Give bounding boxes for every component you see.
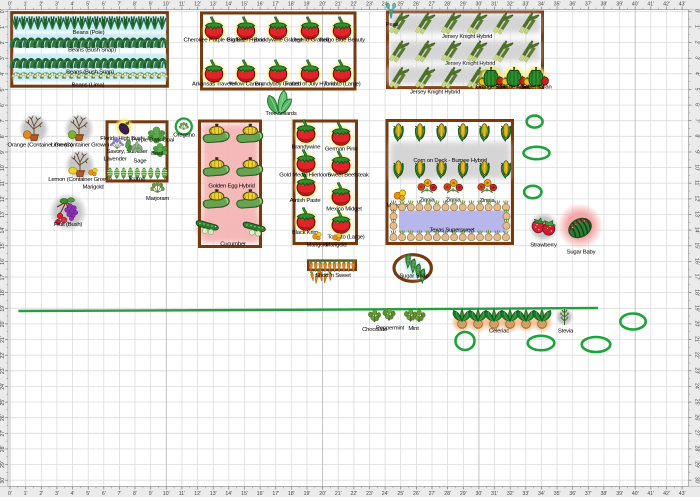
svg-text:2': 2' bbox=[0, 41, 6, 45]
svg-text:Beans (Lima): Beans (Lima) bbox=[72, 82, 105, 88]
svg-text:13': 13' bbox=[210, 2, 217, 8]
svg-text:42': 42' bbox=[663, 2, 670, 8]
svg-text:Lime (Container Grown): Lime (Container Grown) bbox=[51, 143, 110, 149]
svg-text:9': 9' bbox=[149, 2, 153, 8]
svg-text:38': 38' bbox=[601, 2, 608, 8]
svg-text:7': 7' bbox=[0, 119, 6, 123]
svg-text:Stevia: Stevia bbox=[558, 329, 574, 335]
svg-text:17': 17' bbox=[0, 274, 6, 281]
svg-text:25': 25' bbox=[0, 399, 6, 406]
svg-text:10': 10' bbox=[694, 164, 700, 171]
svg-text:22': 22' bbox=[694, 352, 700, 359]
svg-text:28': 28' bbox=[444, 2, 451, 8]
svg-text:10': 10' bbox=[163, 491, 170, 497]
svg-text:3': 3' bbox=[0, 56, 6, 60]
svg-text:6': 6' bbox=[694, 103, 700, 107]
svg-text:6': 6' bbox=[102, 2, 106, 8]
svg-text:21': 21' bbox=[694, 336, 700, 343]
svg-text:43': 43' bbox=[679, 491, 686, 497]
svg-text:32': 32' bbox=[507, 491, 514, 497]
svg-text:37': 37' bbox=[585, 2, 592, 8]
svg-text:Lavender: Lavender bbox=[104, 157, 127, 163]
svg-text:23': 23' bbox=[366, 491, 373, 497]
svg-text:7': 7' bbox=[694, 119, 700, 123]
svg-text:27': 27' bbox=[429, 491, 436, 497]
svg-text:26': 26' bbox=[0, 414, 6, 421]
svg-text:Sugar Snap: Sugar Snap bbox=[399, 274, 429, 280]
svg-text:Sage: Sage bbox=[134, 159, 148, 165]
svg-text:21': 21' bbox=[0, 336, 6, 343]
svg-text:42': 42' bbox=[663, 491, 670, 497]
svg-text:Basil: Basil bbox=[151, 151, 163, 157]
svg-text:German Pink: German Pink bbox=[325, 147, 357, 153]
svg-text:12': 12' bbox=[0, 196, 6, 203]
svg-text:25': 25' bbox=[397, 491, 404, 497]
svg-text:32': 32' bbox=[507, 2, 514, 8]
svg-text:4': 4' bbox=[71, 491, 75, 497]
svg-text:8': 8' bbox=[694, 134, 700, 138]
svg-text:21': 21' bbox=[335, 2, 342, 8]
svg-text:23': 23' bbox=[694, 367, 700, 374]
svg-text:20': 20' bbox=[0, 321, 6, 328]
svg-text:25': 25' bbox=[694, 399, 700, 406]
svg-text:0': 0' bbox=[0, 9, 6, 13]
svg-text:35': 35' bbox=[554, 2, 561, 8]
svg-text:33': 33' bbox=[522, 2, 529, 8]
svg-text:Zinnia: Zinnia bbox=[446, 198, 462, 204]
svg-text:29': 29' bbox=[460, 2, 467, 8]
svg-text:27': 27' bbox=[429, 2, 436, 8]
svg-text:Brandywine: Brandywine bbox=[292, 145, 322, 151]
svg-text:31': 31' bbox=[491, 491, 498, 497]
svg-text:Indigo Blue Beauty: Indigo Blue Beauty bbox=[319, 38, 365, 44]
svg-text:9': 9' bbox=[694, 150, 700, 154]
svg-text:Sweet Italian: Sweet Italian bbox=[520, 85, 551, 91]
svg-text:18': 18' bbox=[0, 289, 6, 296]
svg-text:Sugar Baby: Sugar Baby bbox=[567, 250, 596, 256]
svg-text:Zinnia: Zinnia bbox=[420, 198, 436, 204]
svg-text:16': 16' bbox=[694, 258, 700, 265]
svg-text:4': 4' bbox=[71, 2, 75, 8]
svg-text:5': 5' bbox=[694, 88, 700, 92]
svg-text:29': 29' bbox=[0, 461, 6, 468]
svg-text:23': 23' bbox=[366, 2, 373, 8]
svg-text:Amish Paste: Amish Paste bbox=[290, 198, 322, 204]
svg-text:34': 34' bbox=[538, 491, 545, 497]
svg-text:9': 9' bbox=[149, 491, 153, 497]
svg-text:2': 2' bbox=[39, 2, 43, 8]
svg-text:15': 15' bbox=[241, 491, 248, 497]
svg-text:30': 30' bbox=[476, 2, 483, 8]
svg-text:31': 31' bbox=[491, 2, 498, 8]
svg-text:Mexico Midget: Mexico Midget bbox=[326, 207, 362, 213]
svg-text:35': 35' bbox=[554, 491, 561, 497]
svg-text:36': 36' bbox=[569, 2, 576, 8]
svg-text:14': 14' bbox=[225, 2, 232, 8]
svg-text:11': 11' bbox=[0, 180, 6, 186]
svg-text:0': 0' bbox=[8, 2, 12, 8]
svg-text:Oregano: Oregano bbox=[173, 133, 195, 139]
svg-text:5': 5' bbox=[0, 88, 6, 92]
svg-text:4': 4' bbox=[0, 72, 6, 76]
svg-text:18': 18' bbox=[694, 289, 700, 296]
svg-text:39': 39' bbox=[616, 491, 623, 497]
svg-text:Marigold: Marigold bbox=[326, 243, 347, 249]
svg-text:33': 33' bbox=[522, 491, 529, 497]
svg-text:Tomato (Large): Tomato (Large) bbox=[323, 82, 360, 88]
svg-text:Marigold: Marigold bbox=[83, 185, 104, 191]
svg-text:36': 36' bbox=[569, 491, 576, 497]
svg-text:34': 34' bbox=[538, 2, 545, 8]
svg-text:Tree collards: Tree collards bbox=[265, 111, 296, 117]
svg-text:1': 1' bbox=[0, 25, 6, 29]
svg-text:Cucumber: Cucumber bbox=[220, 242, 246, 248]
svg-text:Gold Medal Hierloom: Gold Medal Hierloom bbox=[279, 173, 331, 179]
svg-text:Jersey Knight Hybrid: Jersey Knight Hybrid bbox=[442, 34, 492, 40]
svg-text:0': 0' bbox=[8, 491, 12, 497]
svg-text:24': 24' bbox=[382, 491, 389, 497]
svg-text:7': 7' bbox=[117, 2, 121, 8]
svg-text:1': 1' bbox=[24, 491, 28, 497]
svg-text:3': 3' bbox=[694, 56, 700, 60]
svg-text:30': 30' bbox=[476, 491, 483, 497]
svg-text:41': 41' bbox=[647, 491, 654, 497]
svg-text:11': 11' bbox=[179, 491, 185, 497]
svg-text:5': 5' bbox=[86, 491, 90, 497]
svg-text:14': 14' bbox=[694, 227, 700, 234]
svg-text:17': 17' bbox=[694, 274, 700, 281]
svg-text:29': 29' bbox=[460, 491, 467, 497]
svg-text:8': 8' bbox=[133, 2, 137, 8]
svg-text:6': 6' bbox=[0, 103, 6, 107]
svg-text:41': 41' bbox=[647, 2, 654, 8]
svg-text:1': 1' bbox=[24, 2, 28, 8]
svg-text:37': 37' bbox=[585, 491, 592, 497]
svg-text:8': 8' bbox=[133, 491, 137, 497]
svg-text:30': 30' bbox=[694, 477, 700, 484]
svg-text:28': 28' bbox=[444, 491, 451, 497]
svg-text:21': 21' bbox=[335, 491, 342, 497]
svg-text:22': 22' bbox=[0, 352, 6, 359]
svg-text:16': 16' bbox=[257, 2, 264, 8]
svg-text:17': 17' bbox=[272, 2, 279, 8]
svg-text:18': 18' bbox=[288, 2, 295, 8]
svg-text:29': 29' bbox=[694, 461, 700, 468]
svg-text:Peppermint: Peppermint bbox=[376, 326, 405, 332]
svg-text:3': 3' bbox=[55, 491, 59, 497]
svg-text:Marigold: Marigold bbox=[307, 243, 328, 249]
svg-text:13': 13' bbox=[0, 211, 6, 218]
svg-text:Beans (Pole): Beans (Pole) bbox=[73, 30, 105, 36]
svg-text:Beans (Bush Snap): Beans (Bush Snap) bbox=[68, 48, 116, 54]
svg-text:27': 27' bbox=[0, 430, 6, 437]
svg-text:19': 19' bbox=[304, 491, 311, 497]
svg-text:22': 22' bbox=[351, 491, 358, 497]
svg-text:14': 14' bbox=[225, 491, 232, 497]
svg-text:23': 23' bbox=[0, 367, 6, 374]
svg-text:12': 12' bbox=[194, 2, 201, 8]
svg-text:26': 26' bbox=[413, 2, 420, 8]
svg-text:11': 11' bbox=[694, 180, 700, 186]
svg-text:24': 24' bbox=[694, 383, 700, 390]
svg-text:26': 26' bbox=[694, 414, 700, 421]
svg-text:22': 22' bbox=[351, 2, 358, 8]
svg-text:Sweet Beefsteak: Sweet Beefsteak bbox=[327, 173, 368, 179]
svg-text:13': 13' bbox=[210, 491, 217, 497]
svg-text:10': 10' bbox=[163, 2, 170, 8]
svg-text:13': 13' bbox=[694, 211, 700, 218]
svg-text:9': 9' bbox=[0, 150, 6, 154]
svg-text:12': 12' bbox=[194, 491, 201, 497]
svg-text:Marjoram: Marjoram bbox=[146, 196, 170, 202]
svg-text:19': 19' bbox=[694, 305, 700, 312]
svg-text:15': 15' bbox=[0, 242, 6, 249]
svg-text:Strawberry: Strawberry bbox=[530, 243, 557, 249]
svg-text:2': 2' bbox=[694, 41, 700, 45]
svg-text:38': 38' bbox=[601, 491, 608, 497]
svg-text:25': 25' bbox=[397, 2, 404, 8]
svg-text:14': 14' bbox=[0, 227, 6, 234]
svg-text:Beans (Bush Snap): Beans (Bush Snap) bbox=[66, 70, 114, 76]
svg-text:Mint: Mint bbox=[408, 326, 419, 332]
svg-text:26': 26' bbox=[413, 491, 420, 497]
svg-text:Peas: Peas bbox=[386, 22, 399, 28]
svg-text:10': 10' bbox=[0, 164, 6, 171]
svg-text:20': 20' bbox=[319, 2, 326, 8]
svg-text:43': 43' bbox=[679, 2, 686, 8]
svg-text:19': 19' bbox=[0, 305, 6, 312]
svg-text:0': 0' bbox=[694, 9, 700, 13]
svg-text:Fruit (Bush): Fruit (Bush) bbox=[54, 222, 83, 228]
svg-text:16': 16' bbox=[257, 491, 264, 497]
svg-text:28': 28' bbox=[0, 446, 6, 453]
svg-text:Texas Supersweet: Texas Supersweet bbox=[430, 228, 475, 234]
svg-text:1': 1' bbox=[694, 25, 700, 29]
svg-text:Jersey Knight Hybrid: Jersey Knight Hybrid bbox=[410, 90, 460, 96]
svg-text:40': 40' bbox=[632, 491, 639, 497]
svg-text:11': 11' bbox=[179, 2, 185, 8]
svg-text:Lemon (Container Grown): Lemon (Container Grown) bbox=[48, 177, 112, 183]
svg-text:28': 28' bbox=[694, 446, 700, 453]
svg-text:Jicama: Jicama bbox=[127, 177, 145, 183]
svg-text:15': 15' bbox=[241, 2, 248, 8]
svg-text:18': 18' bbox=[288, 491, 295, 497]
svg-text:16': 16' bbox=[0, 258, 6, 265]
svg-text:19': 19' bbox=[304, 2, 311, 8]
svg-text:17': 17' bbox=[272, 491, 279, 497]
svg-text:30': 30' bbox=[0, 477, 6, 484]
svg-text:12': 12' bbox=[694, 196, 700, 203]
svg-text:6': 6' bbox=[102, 491, 106, 497]
svg-text:7': 7' bbox=[117, 491, 121, 497]
svg-text:8': 8' bbox=[0, 134, 6, 138]
svg-text:40': 40' bbox=[632, 2, 639, 8]
svg-text:20': 20' bbox=[319, 491, 326, 497]
svg-text:4': 4' bbox=[694, 72, 700, 76]
svg-text:3': 3' bbox=[55, 2, 59, 8]
svg-text:2': 2' bbox=[39, 491, 43, 497]
svg-text:27': 27' bbox=[694, 430, 700, 437]
svg-text:Golden Egg Hybrid: Golden Egg Hybrid bbox=[208, 184, 254, 190]
svg-text:39': 39' bbox=[616, 2, 623, 8]
svg-text:20': 20' bbox=[694, 321, 700, 328]
svg-text:Short 'n Sweet: Short 'n Sweet bbox=[315, 273, 351, 279]
svg-text:15': 15' bbox=[694, 242, 700, 249]
svg-text:24': 24' bbox=[0, 383, 6, 390]
svg-text:Celeriac: Celeriac bbox=[489, 329, 509, 335]
svg-text:5': 5' bbox=[86, 2, 90, 8]
